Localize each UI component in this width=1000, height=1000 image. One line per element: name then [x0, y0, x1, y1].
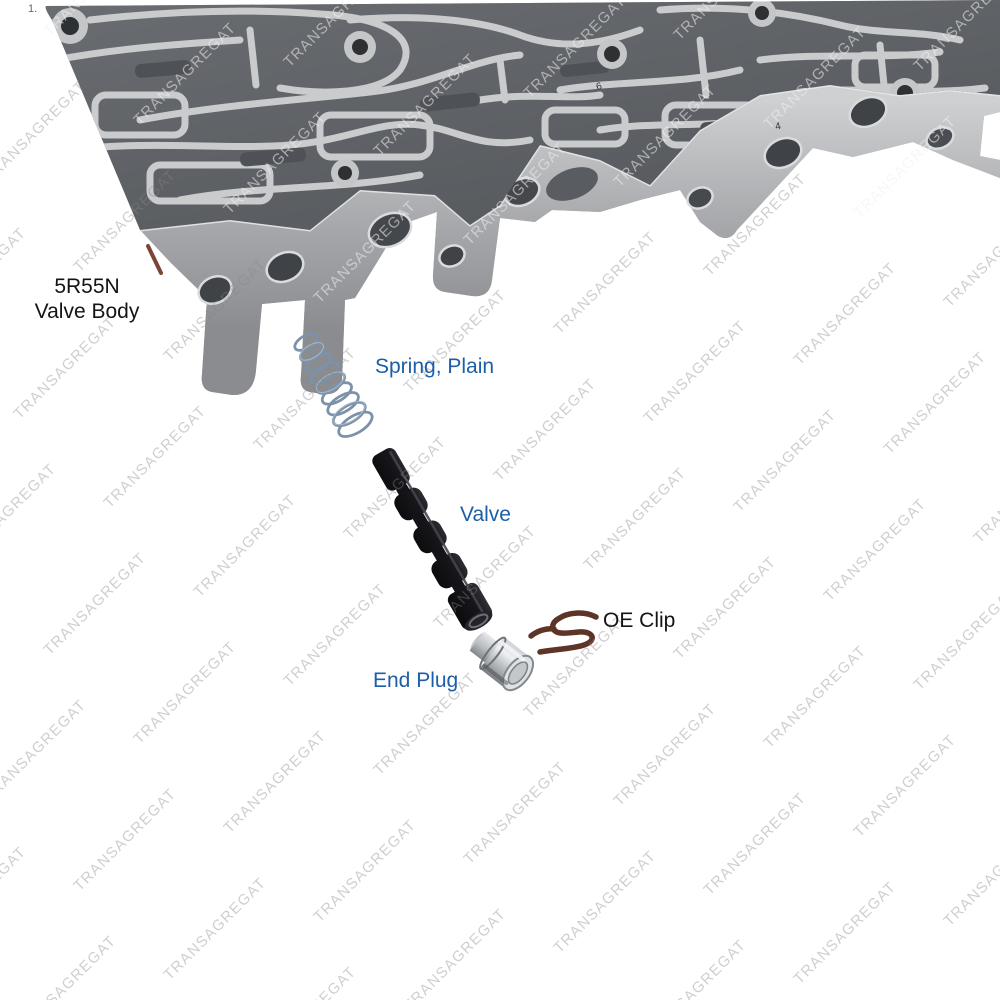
part-title-line1: 5R55N: [22, 274, 152, 299]
cast-digit-top-left: 1.: [28, 3, 37, 15]
oe-clip-photo: [531, 613, 596, 652]
end-plug-photo: [463, 624, 539, 696]
oe-clip-label: OE Clip: [603, 609, 675, 633]
part-title-line2: Valve Body: [22, 299, 152, 324]
part-title-label: 5R55N Valve Body: [22, 274, 152, 324]
spring-label: Spring, Plain: [375, 355, 494, 379]
parts-diagram-scene: 1. 6 4: [0, 0, 1000, 1000]
valve-label: Valve: [460, 503, 511, 527]
end-plug-label: End Plug: [373, 669, 458, 693]
valve-body-photo: 1. 6 4: [0, 0, 1000, 1000]
valve-photo: [366, 444, 496, 636]
valve-body-casting: 1. 6 4: [0, 0, 1000, 395]
